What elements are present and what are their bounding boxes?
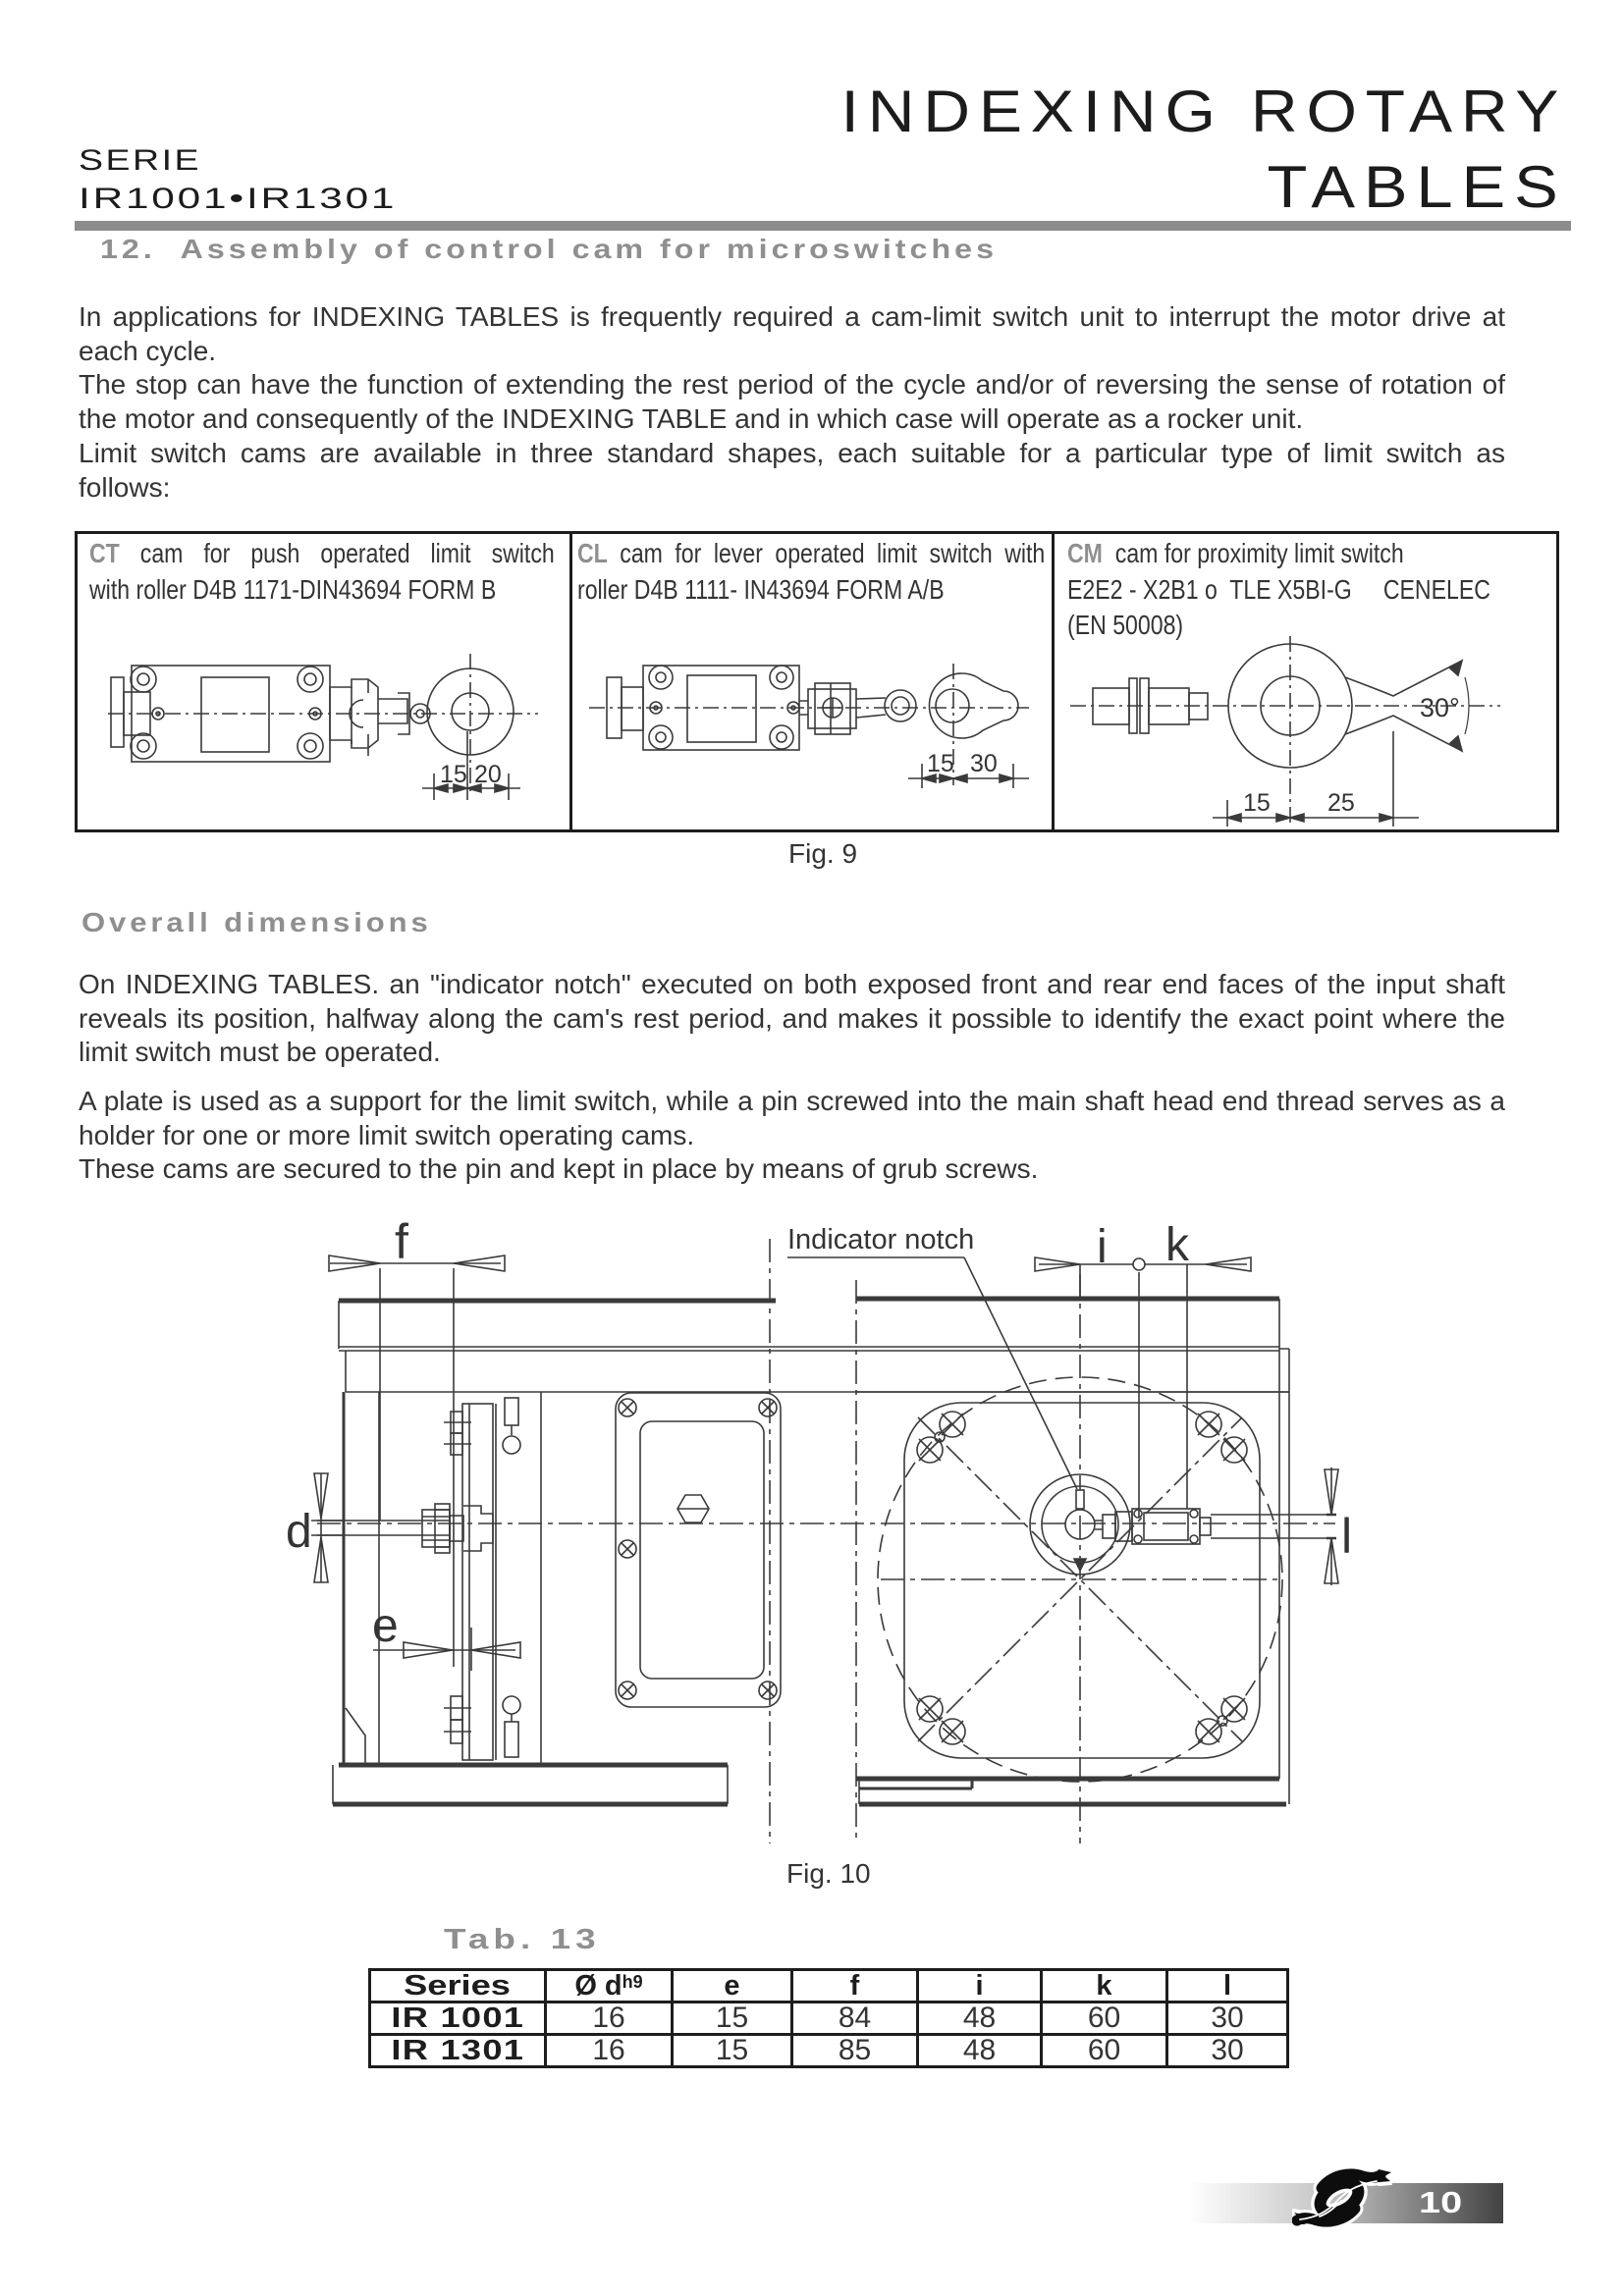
svg-text:15: 15 [1243, 789, 1271, 817]
svg-text:20: 20 [474, 761, 502, 788]
svg-text:25: 25 [1327, 789, 1355, 817]
svg-text:d: d [286, 1506, 312, 1558]
svg-text:e: e [372, 1600, 399, 1652]
svg-text:15: 15 [440, 761, 467, 788]
svg-text:30: 30 [970, 750, 998, 777]
svg-text:l: l [1341, 1509, 1352, 1564]
svg-text:k: k [1165, 1219, 1190, 1271]
svg-text:f: f [395, 1219, 408, 1269]
svg-text:i: i [1097, 1221, 1108, 1273]
svg-text:Indicator notch: Indicator notch [787, 1224, 974, 1255]
svg-text:15: 15 [927, 750, 954, 777]
svg-text:30°: 30° [1420, 693, 1460, 722]
